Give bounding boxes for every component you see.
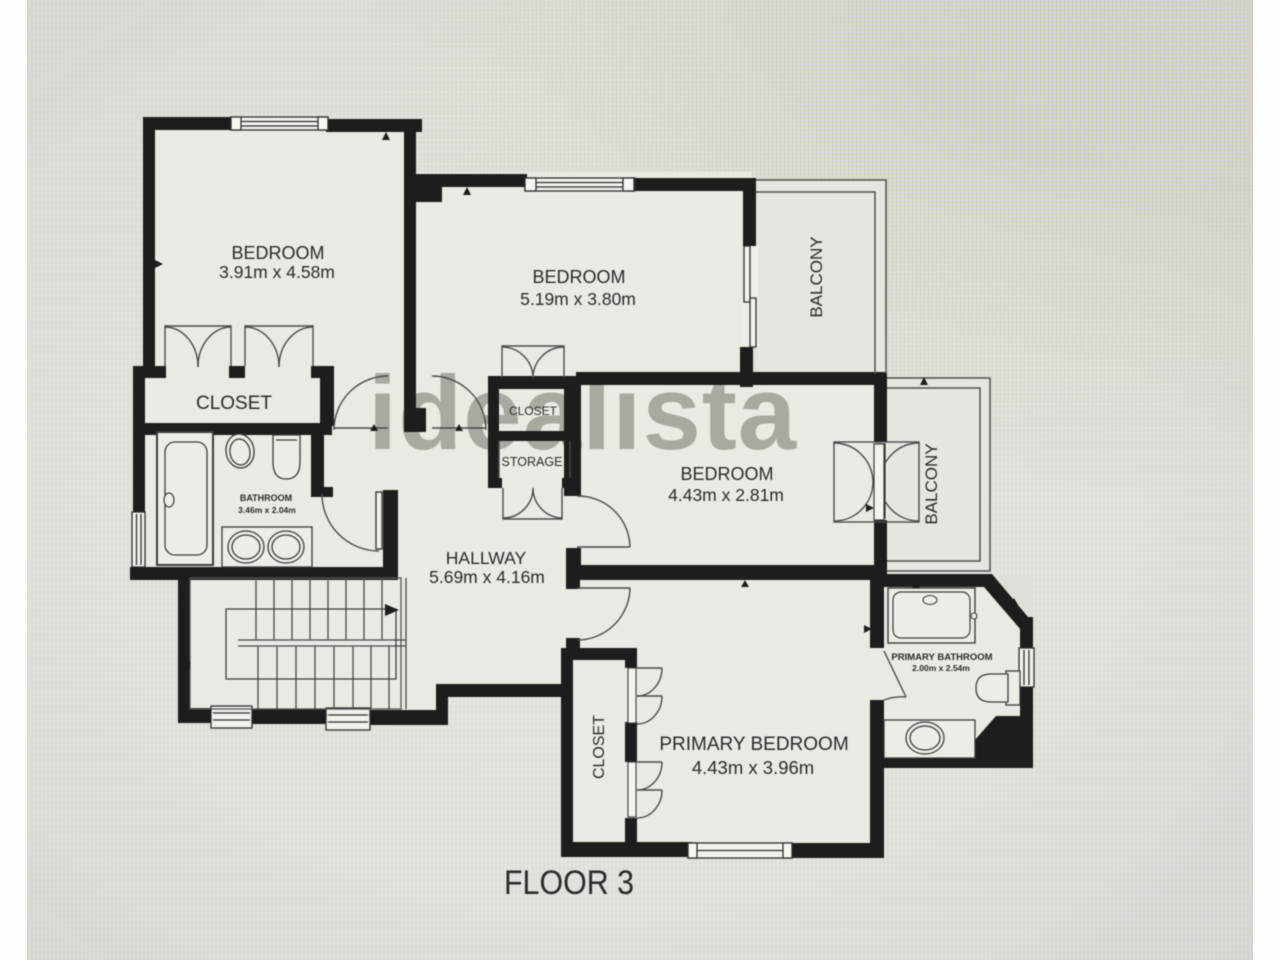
svg-text:4.43m x 3.96m: 4.43m x 3.96m — [692, 757, 814, 778]
svg-text:5.69m x 4.16m: 5.69m x 4.16m — [429, 567, 545, 587]
svg-text:BALCONY: BALCONY — [922, 443, 941, 524]
svg-text:BATHROOM: BATHROOM — [240, 493, 292, 503]
svg-text:CLOSET: CLOSET — [591, 715, 608, 779]
svg-text:PRIMARY BEDROOM: PRIMARY BEDROOM — [659, 734, 848, 755]
svg-text:BEDROOM: BEDROOM — [532, 267, 625, 287]
svg-text:3.46m x 2.04m: 3.46m x 2.04m — [238, 505, 296, 515]
svg-text:BEDROOM: BEDROOM — [680, 464, 773, 484]
svg-text:4.43m x 2.81m: 4.43m x 2.81m — [668, 485, 784, 505]
svg-text:5.19m x 3.80m: 5.19m x 3.80m — [520, 289, 636, 309]
svg-text:2.00m x 2.54m: 2.00m x 2.54m — [912, 663, 970, 673]
svg-text:CLOSET: CLOSET — [196, 393, 272, 414]
svg-text:BEDROOM: BEDROOM — [231, 243, 324, 263]
svg-text:3.91m x 4.58m: 3.91m x 4.58m — [219, 262, 335, 282]
svg-text:BALCONY: BALCONY — [807, 236, 826, 317]
svg-text:FLOOR 3: FLOOR 3 — [504, 864, 634, 902]
svg-text:STORAGE: STORAGE — [502, 455, 563, 469]
svg-text:PRIMARY BATHROOM: PRIMARY BATHROOM — [891, 652, 992, 663]
svg-text:CLOSET: CLOSET — [509, 404, 558, 418]
svg-text:HALLWAY: HALLWAY — [446, 548, 527, 568]
